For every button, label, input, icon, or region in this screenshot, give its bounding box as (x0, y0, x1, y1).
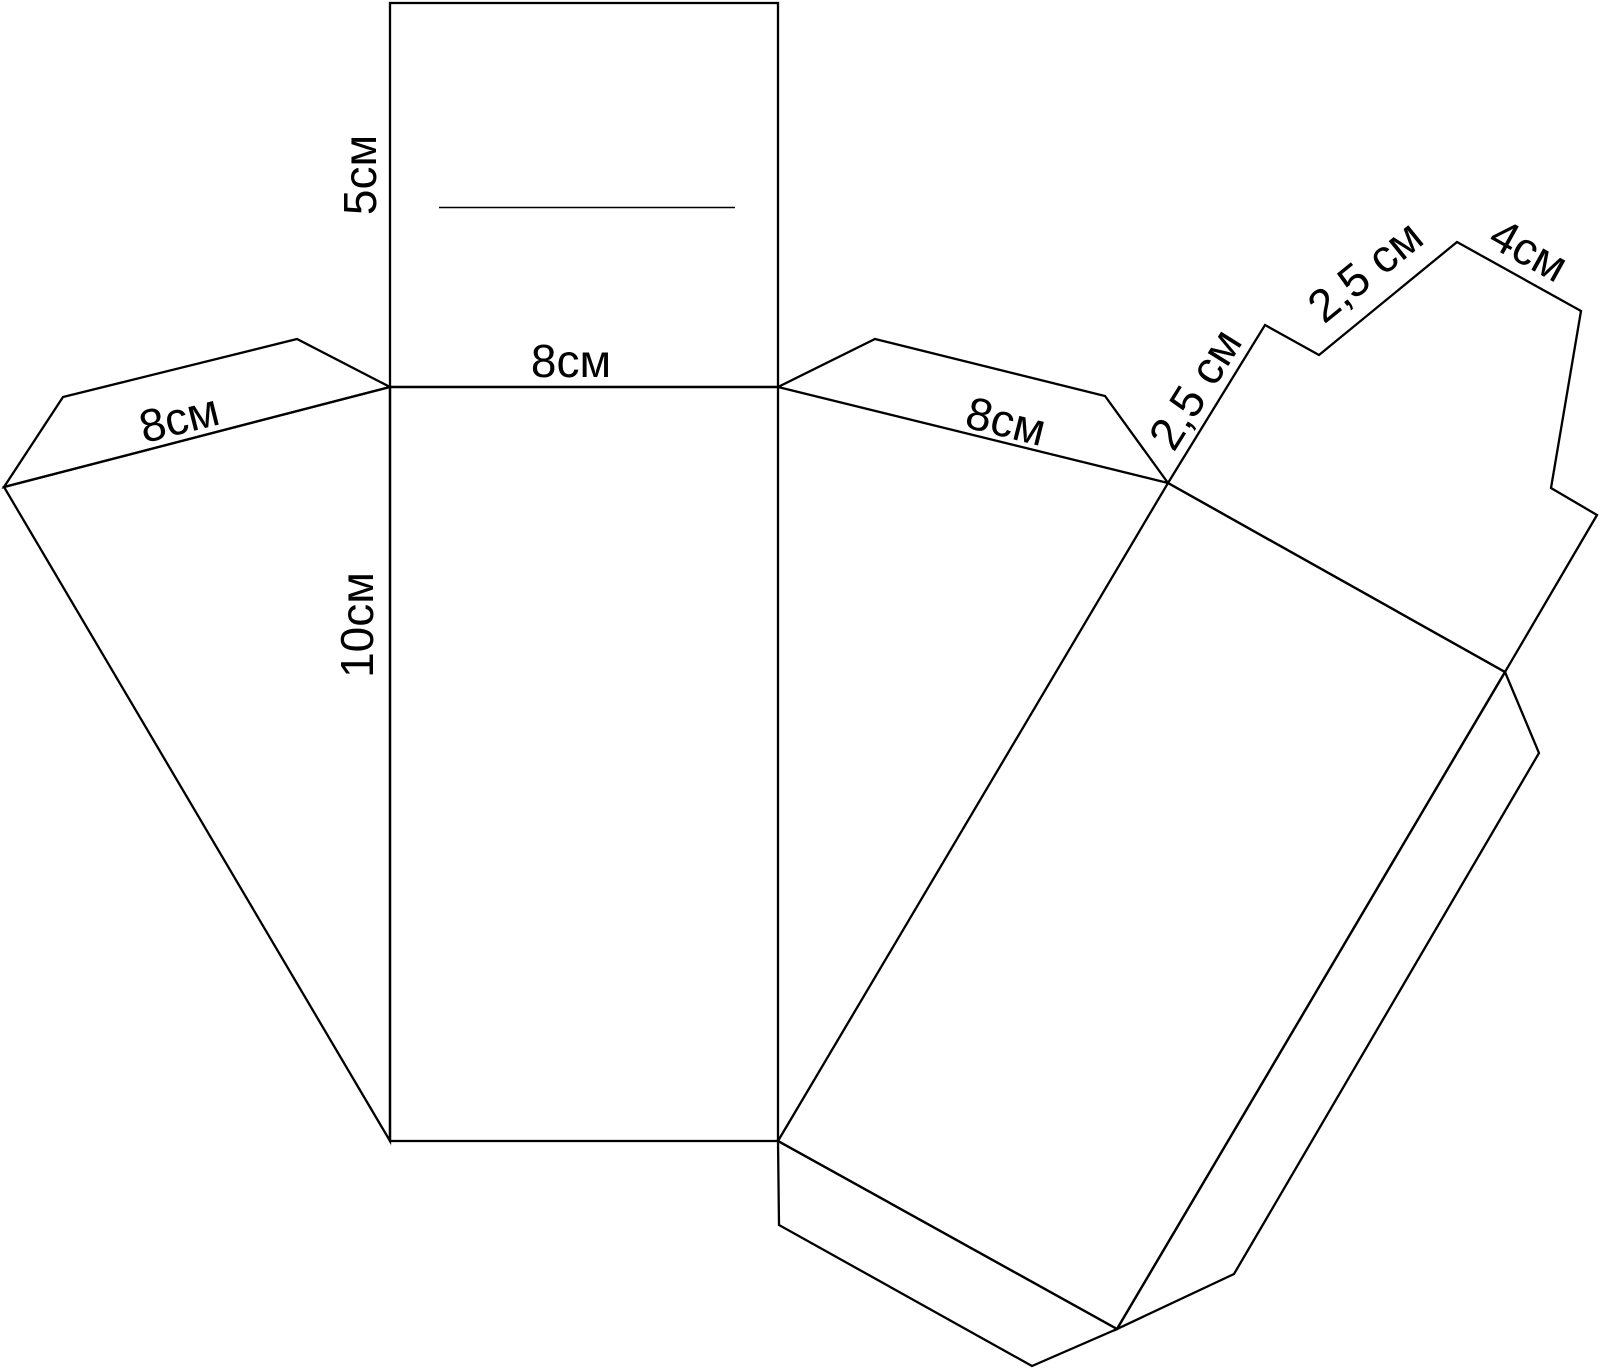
svg-text:10см: 10см (331, 572, 383, 678)
svg-text:8см: 8см (531, 335, 611, 387)
svg-text:5см: 5см (334, 135, 386, 215)
